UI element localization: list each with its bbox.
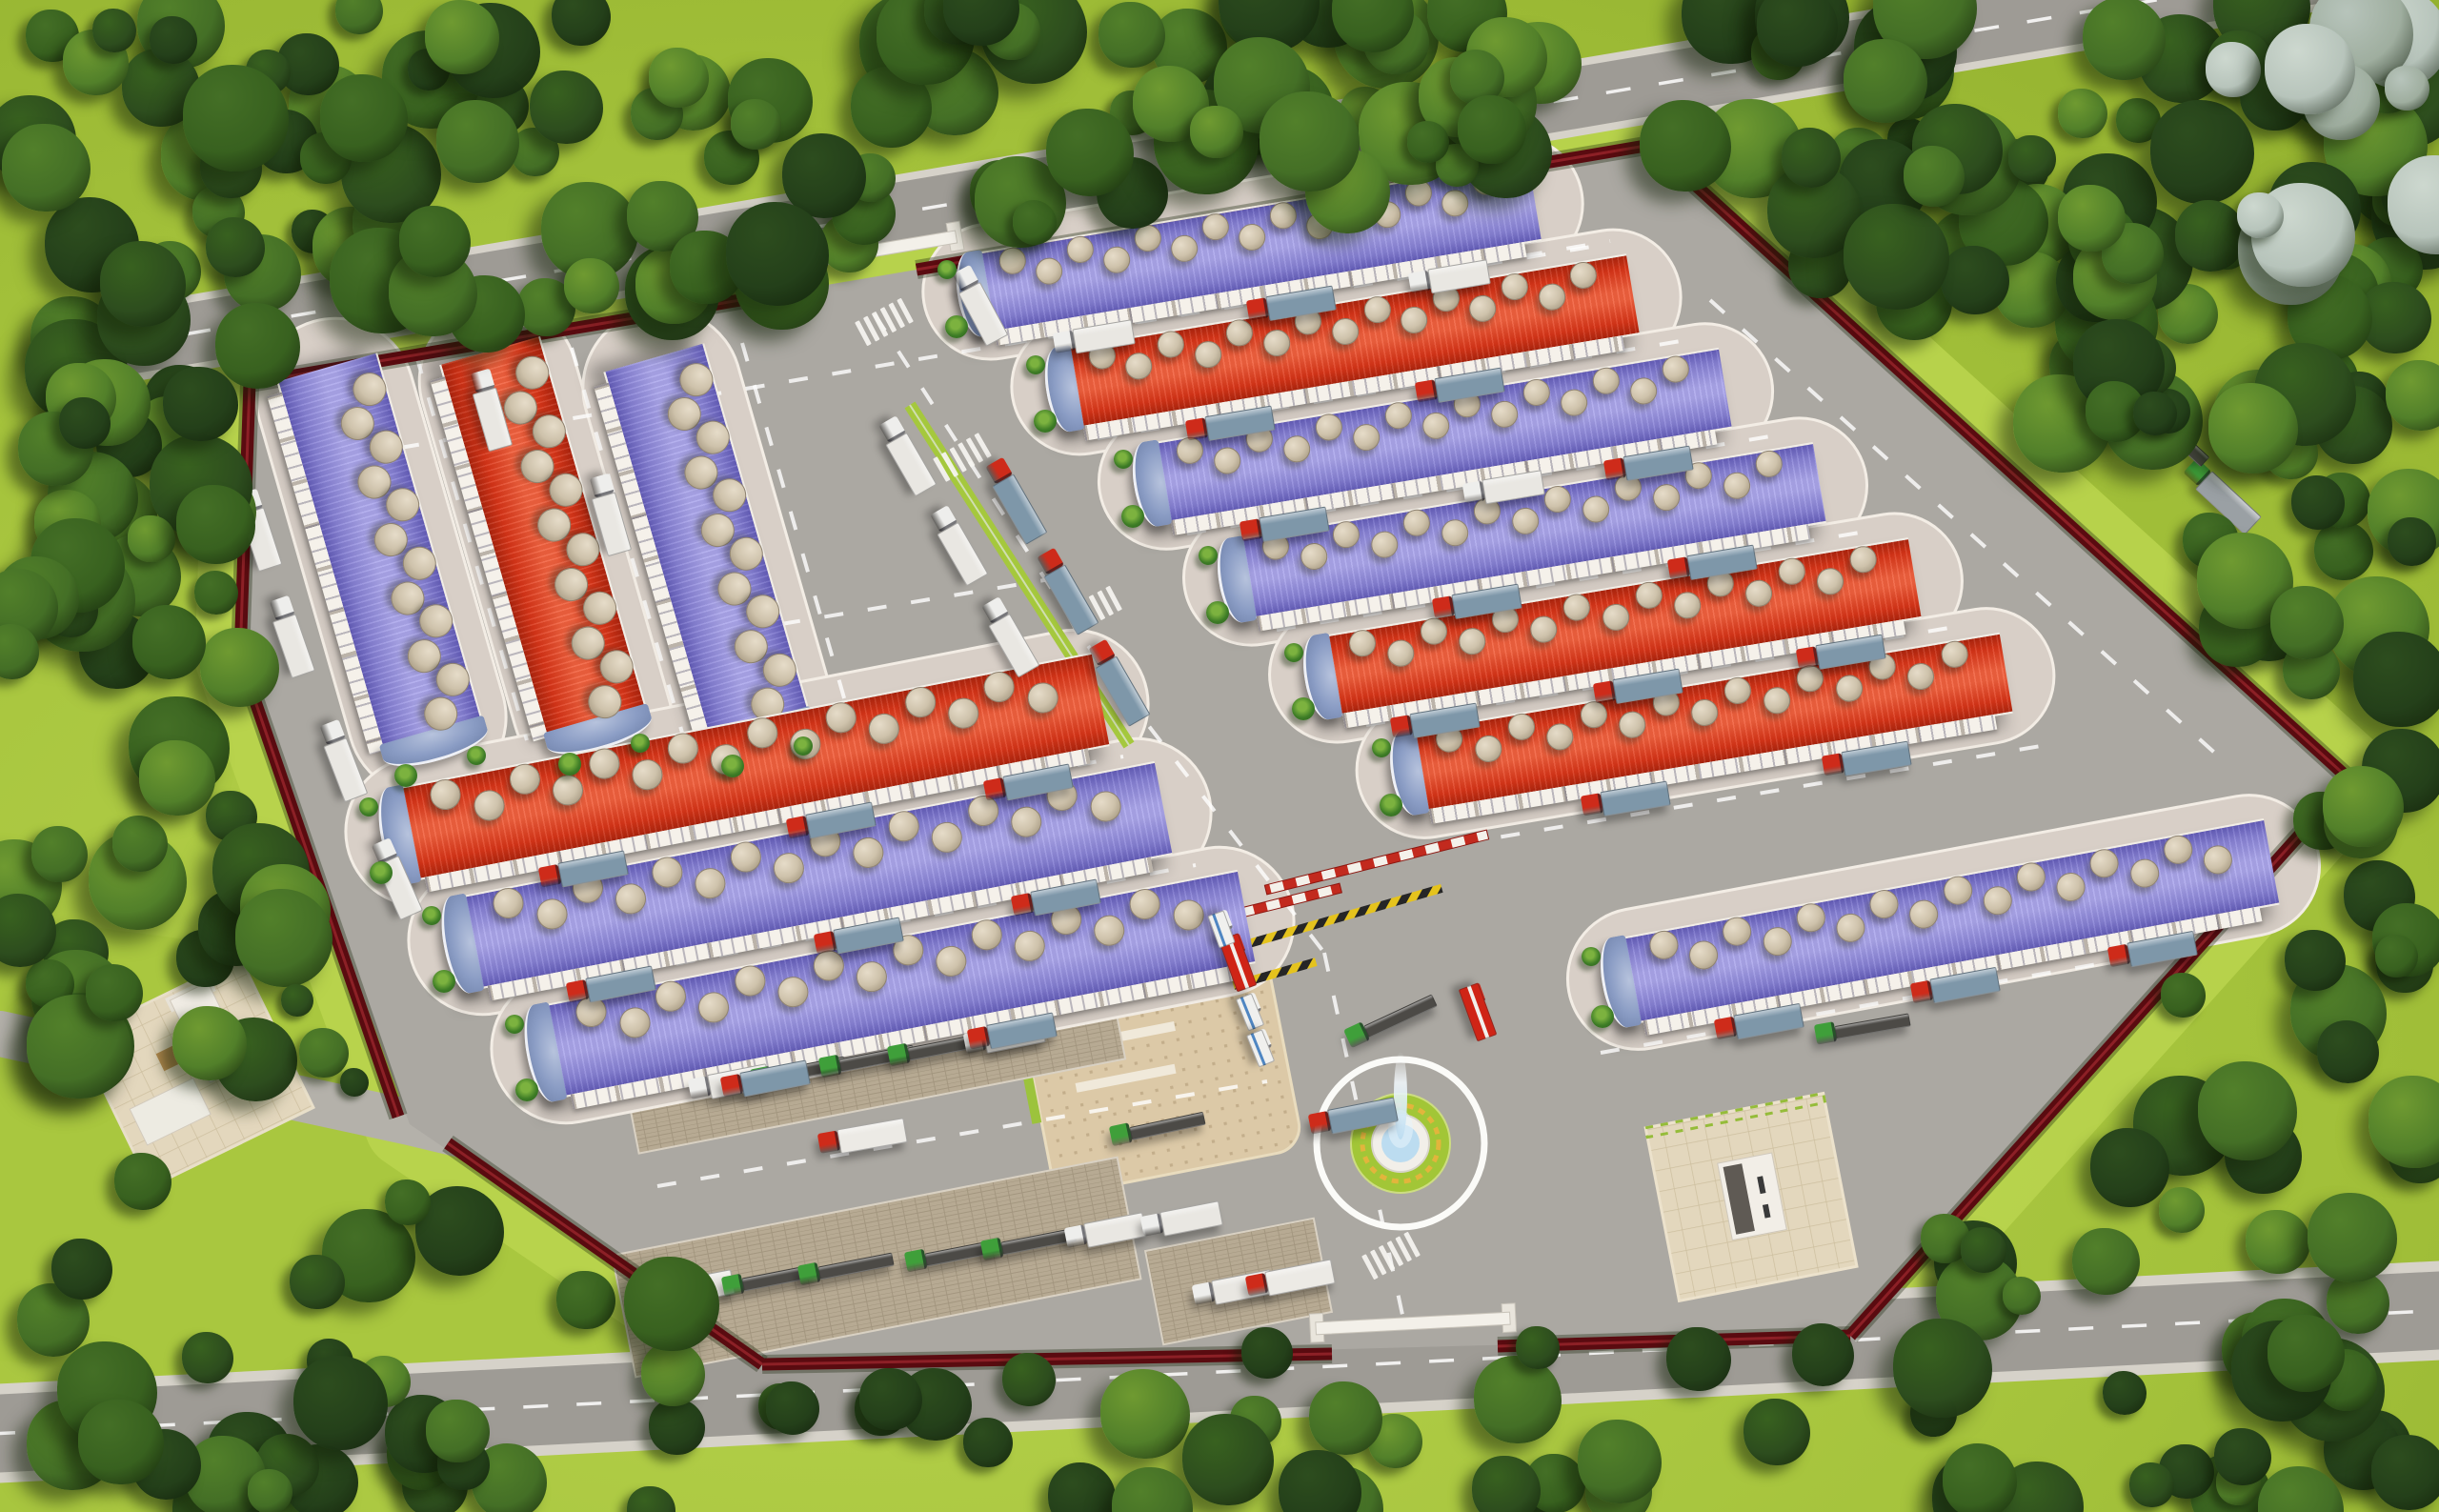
- aerial-rendering-stage: [0, 0, 2439, 1512]
- palm-tree: [1292, 697, 1315, 720]
- tree: [1474, 1356, 1562, 1443]
- tree: [340, 1068, 369, 1097]
- tree: [530, 71, 603, 144]
- tree: [731, 99, 781, 150]
- tree: [649, 48, 709, 108]
- tree: [2159, 1187, 2205, 1233]
- tree: [1112, 1467, 1193, 1512]
- tree: [2083, 0, 2166, 80]
- tree: [726, 202, 830, 306]
- palm-tree: [433, 970, 455, 993]
- tree: [1100, 1369, 1190, 1459]
- tree: [2317, 1020, 2380, 1083]
- tree: [2090, 1128, 2169, 1207]
- tree: [182, 1332, 233, 1383]
- tree: [1792, 1323, 1855, 1386]
- tree: [1943, 1443, 2017, 1512]
- tree: [86, 964, 143, 1021]
- tree: [100, 241, 186, 327]
- palm-tree: [937, 260, 957, 279]
- palm-tree: [1034, 410, 1057, 433]
- tree: [1099, 2, 1164, 68]
- palm-tree: [631, 734, 650, 753]
- tree: [627, 1486, 675, 1512]
- palm-tree: [394, 764, 417, 787]
- tree: [281, 984, 313, 1017]
- tree: [1190, 106, 1242, 158]
- tree: [1048, 1462, 1117, 1512]
- tree: [59, 397, 111, 449]
- tree: [139, 740, 215, 816]
- tree: [564, 258, 619, 313]
- tree: [92, 9, 136, 52]
- tree: [128, 515, 175, 563]
- palm-tree: [721, 755, 744, 777]
- tree: [1241, 1327, 1293, 1379]
- tree: [2371, 1435, 2439, 1510]
- tree: [2323, 766, 2404, 847]
- tree: [248, 1469, 292, 1512]
- tree: [132, 605, 206, 678]
- palm-tree: [1114, 450, 1133, 469]
- tree: [31, 826, 88, 882]
- tree: [2103, 1371, 2147, 1415]
- tree: [436, 100, 519, 183]
- tree: [552, 0, 611, 46]
- tree: [425, 0, 499, 74]
- tree: [766, 1381, 819, 1435]
- tree: [320, 74, 408, 162]
- tree: [2291, 475, 2346, 530]
- palm-tree: [1284, 643, 1303, 662]
- tree: [51, 1239, 112, 1300]
- palm-tree: [558, 753, 581, 776]
- palm-tree: [505, 1015, 524, 1034]
- palm-tree: [515, 1079, 538, 1101]
- tree: [1516, 1326, 1560, 1370]
- palm-tree: [370, 861, 393, 884]
- tree: [1844, 39, 1927, 123]
- tree: [1578, 1420, 1662, 1503]
- tree: [1260, 91, 1360, 192]
- tree: [1893, 1319, 1992, 1418]
- palm-tree: [359, 797, 378, 816]
- tree: [194, 571, 238, 615]
- palm-tree: [794, 736, 813, 756]
- tree: [2368, 1076, 2439, 1167]
- tree: [1941, 246, 2008, 313]
- palm-tree: [1206, 601, 1229, 624]
- tree: [624, 1257, 718, 1351]
- tree: [1904, 146, 1965, 207]
- tree: [2388, 517, 2436, 566]
- tree: [1279, 1450, 1361, 1512]
- tree: [1458, 95, 1526, 164]
- tree: [176, 485, 255, 564]
- palm-tree: [945, 315, 968, 338]
- tree: [641, 1341, 705, 1405]
- tree: [150, 16, 198, 65]
- tree: [172, 1006, 247, 1080]
- palm-tree: [1591, 1005, 1614, 1028]
- tree: [163, 367, 237, 441]
- tree: [1002, 1353, 1056, 1406]
- tree: [2198, 1061, 2297, 1160]
- tree: [859, 1368, 922, 1431]
- palm-tree: [422, 906, 441, 925]
- tree: [114, 1153, 171, 1210]
- tree: [2375, 935, 2418, 978]
- tree: [1961, 1227, 2006, 1273]
- silver-tree: [2206, 42, 2261, 97]
- tree: [293, 1356, 388, 1450]
- tree: [2314, 521, 2373, 580]
- tree: [426, 1400, 489, 1462]
- tree: [1407, 121, 1449, 163]
- tree: [2246, 1210, 2309, 1274]
- tree: [2072, 1228, 2140, 1296]
- tree: [183, 65, 289, 171]
- palm-tree: [467, 746, 486, 765]
- tree: [1744, 1399, 1810, 1465]
- tree: [2008, 135, 2055, 182]
- tree: [1640, 100, 1731, 192]
- tree: [2, 124, 90, 212]
- tree: [235, 889, 333, 986]
- tree: [290, 1255, 344, 1309]
- tree: [1844, 204, 1949, 310]
- tree: [2386, 360, 2439, 430]
- palm-tree: [1121, 505, 1144, 528]
- tree: [2133, 392, 2177, 435]
- palm-tree: [1026, 355, 1045, 374]
- tree: [1046, 109, 1134, 196]
- tree: [78, 1400, 164, 1485]
- silver-tree: [2265, 24, 2354, 113]
- tree: [299, 1028, 349, 1078]
- tree: [2214, 1428, 2271, 1485]
- tree: [2150, 100, 2254, 204]
- tree: [200, 628, 279, 707]
- tree: [2208, 383, 2298, 473]
- tree: [2175, 200, 2247, 272]
- tree: [2285, 930, 2345, 990]
- tree: [2058, 89, 2107, 138]
- tree: [2270, 586, 2344, 659]
- tree: [2003, 1277, 2041, 1315]
- tree: [1666, 1327, 1731, 1392]
- tree: [556, 1271, 615, 1329]
- tree: [2161, 973, 2206, 1018]
- tree: [2268, 1315, 2345, 1392]
- tree: [1013, 200, 1057, 244]
- tree: [1182, 1414, 1274, 1505]
- tree: [215, 303, 300, 388]
- vegetation-layer: [0, 0, 2439, 1512]
- tree: [2308, 1193, 2397, 1282]
- silver-tree: [2237, 192, 2284, 239]
- tree: [112, 816, 169, 872]
- tree: [206, 217, 266, 277]
- tree: [2353, 632, 2439, 728]
- tree: [335, 0, 383, 34]
- silver-tree: [2385, 66, 2429, 111]
- tree: [385, 1179, 431, 1225]
- palm-tree: [1199, 546, 1218, 565]
- palm-tree: [1372, 738, 1391, 757]
- tree: [399, 206, 471, 277]
- tree: [649, 1399, 704, 1454]
- palm-tree: [1582, 947, 1601, 966]
- tree: [2129, 1462, 2174, 1507]
- palm-tree: [1380, 794, 1402, 816]
- tree: [963, 1418, 1013, 1467]
- tree: [1309, 1381, 1382, 1455]
- tree: [1782, 128, 1841, 187]
- tree: [2058, 185, 2125, 252]
